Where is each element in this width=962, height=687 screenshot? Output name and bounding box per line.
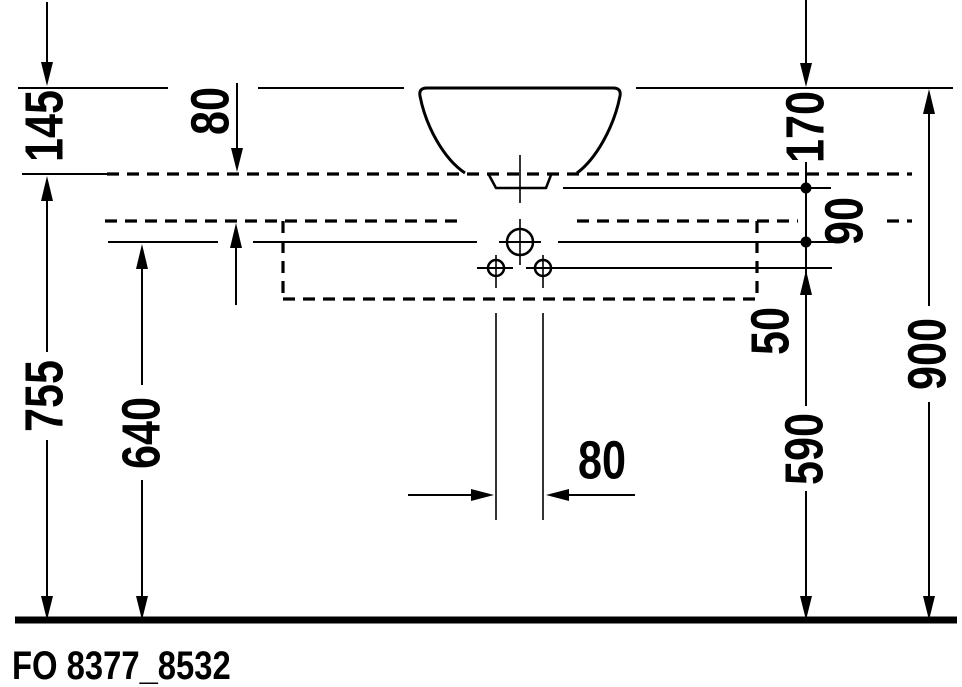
arrow-down-icon bbox=[231, 148, 243, 172]
dim-label-hole-spacing: 80 bbox=[578, 431, 626, 491]
dim-dot-outlet bbox=[801, 183, 812, 194]
dim-label-floor-to-counter: 755 bbox=[15, 360, 75, 432]
arrow-down-icon bbox=[41, 596, 53, 620]
dim-floor-to-rim: 900 bbox=[898, 89, 958, 620]
dim-label-outlet-to-faucet: 90 bbox=[815, 197, 875, 245]
dim-label-faucet-to-holes: 50 bbox=[741, 307, 801, 355]
arrow-down-icon bbox=[41, 62, 53, 86]
dim-counter-thickness: 80 bbox=[181, 83, 243, 305]
dim-basin-height-and-counter-height: 145 755 bbox=[15, 2, 75, 620]
dim-label-basin-height: 145 bbox=[15, 90, 75, 162]
dim-chain-right: 170 90 50 590 bbox=[741, 0, 875, 620]
arrow-left-icon bbox=[546, 489, 569, 501]
arrow-up-icon bbox=[923, 89, 935, 114]
arrow-up-icon bbox=[230, 223, 242, 248]
dim-label-floor-to-faucet-line: 640 bbox=[112, 397, 172, 469]
dim-floor-to-faucet-line: 640 bbox=[112, 244, 172, 620]
arrow-up-icon bbox=[800, 270, 812, 295]
dim-label-floor-to-lower-holes: 590 bbox=[775, 413, 835, 485]
dim-label-floor-to-rim: 900 bbox=[898, 318, 958, 390]
arrow-right-icon bbox=[471, 489, 494, 501]
arrow-down-icon bbox=[800, 63, 812, 87]
arrow-down-icon bbox=[800, 596, 812, 620]
dim-label-counter-thickness: 80 bbox=[181, 87, 241, 135]
arrow-up-icon bbox=[136, 244, 148, 269]
arrow-down-icon bbox=[136, 596, 148, 620]
dim-dot-faucet bbox=[801, 237, 812, 248]
arrow-up-icon bbox=[41, 176, 53, 201]
dim-hole-spacing: 80 bbox=[408, 431, 635, 501]
arrow-down-icon bbox=[923, 596, 935, 620]
installation-drawing: 80 145 755 80 640 170 90 50 bbox=[0, 0, 962, 687]
product-code-label: FO 8377_8532 bbox=[12, 643, 231, 687]
dim-label-rim-to-outlet: 170 bbox=[776, 91, 836, 163]
